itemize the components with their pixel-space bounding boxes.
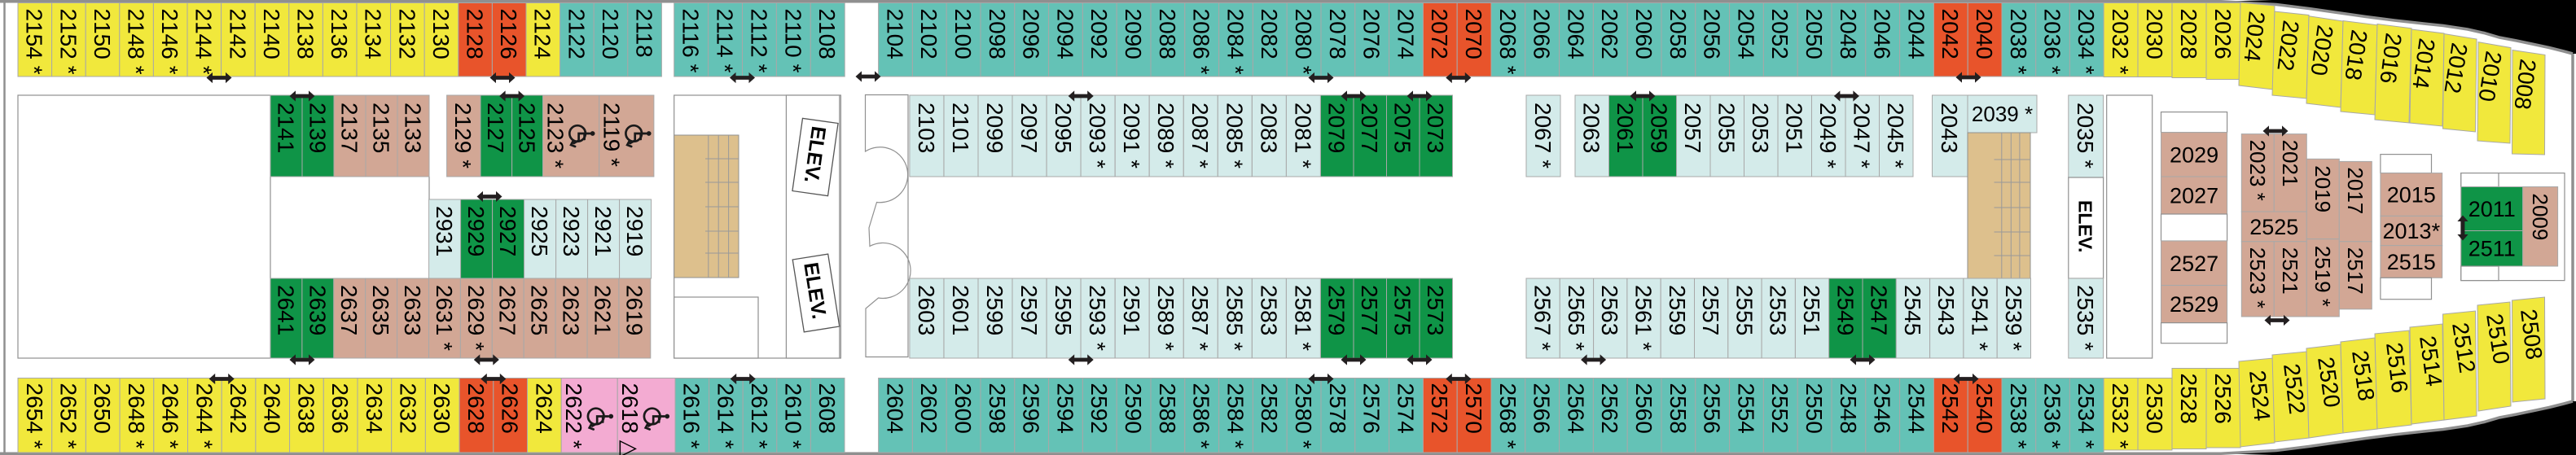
svg-text:2594: 2594 [1052, 383, 1077, 434]
svg-text:2602: 2602 [916, 383, 941, 434]
svg-text:2027: 2027 [2170, 183, 2218, 208]
svg-text:2581 *: 2581 * [1290, 285, 1315, 351]
svg-text:2049 *: 2049 * [1815, 103, 1841, 168]
svg-text:2120: 2120 [598, 9, 623, 59]
svg-text:2138: 2138 [293, 9, 318, 59]
svg-text:2047 *: 2047 * [1850, 103, 1875, 168]
svg-text:2146 *: 2146 * [157, 9, 182, 75]
svg-text:2102: 2102 [916, 9, 941, 59]
svg-text:2622 *: 2622 * [561, 383, 586, 449]
svg-text:2517: 2517 [2343, 247, 2368, 295]
svg-text:2554: 2554 [1733, 383, 1758, 434]
svg-text:2152 *: 2152 * [55, 9, 81, 75]
svg-text:2635: 2635 [368, 285, 393, 335]
svg-text:2567 *: 2567 * [1530, 285, 1556, 351]
svg-text:2026: 2026 [2210, 9, 2236, 59]
svg-text:2541 *: 2541 * [1968, 285, 1993, 351]
svg-text:2636: 2636 [327, 383, 353, 434]
svg-text:2125: 2125 [515, 103, 540, 153]
svg-text:2062: 2062 [1597, 9, 1622, 59]
svg-text:2154 *: 2154 * [22, 9, 47, 75]
svg-text:2559: 2559 [1665, 285, 1690, 335]
svg-text:2557: 2557 [1698, 285, 1723, 335]
svg-text:2596: 2596 [1019, 383, 1044, 434]
svg-text:2639: 2639 [305, 285, 330, 335]
svg-text:2625: 2625 [527, 285, 552, 335]
svg-text:2104: 2104 [882, 9, 907, 59]
svg-text:2521: 2521 [2278, 247, 2302, 295]
svg-text:2634: 2634 [362, 383, 387, 434]
svg-text:2084 *: 2084 * [1222, 9, 1248, 75]
svg-text:2061: 2061 [1613, 103, 1638, 153]
svg-text:2538 *: 2538 * [2006, 383, 2031, 449]
svg-text:2130: 2130 [428, 9, 454, 59]
svg-text:2610 *: 2610 * [781, 383, 806, 449]
svg-text:2046: 2046 [1870, 9, 1895, 59]
svg-text:2629 *: 2629 * [463, 285, 489, 351]
svg-text:2590: 2590 [1121, 383, 1146, 434]
svg-text:2096: 2096 [1019, 9, 1044, 59]
svg-text:2618 △: 2618 △ [617, 383, 643, 455]
svg-text:2555: 2555 [1731, 285, 1757, 335]
svg-text:2140: 2140 [259, 9, 284, 59]
svg-text:2082: 2082 [1257, 9, 1282, 59]
svg-text:2532 *: 2532 * [2108, 383, 2133, 449]
svg-text:2626: 2626 [498, 383, 523, 434]
svg-text:2019: 2019 [2311, 165, 2335, 212]
svg-text:2045 *: 2045 * [1883, 103, 1908, 168]
svg-text:2009: 2009 [2528, 194, 2552, 241]
svg-text:2134: 2134 [361, 9, 386, 59]
svg-text:2044: 2044 [1903, 9, 1929, 59]
svg-text:2604: 2604 [882, 383, 907, 434]
svg-text:2035 *: 2035 * [2073, 103, 2098, 168]
svg-text:2030: 2030 [2142, 9, 2167, 59]
svg-text:2603: 2603 [914, 285, 939, 335]
svg-text:2565 *: 2565 * [1564, 285, 1589, 351]
svg-text:2614 *: 2614 * [713, 383, 738, 449]
svg-text:2094: 2094 [1052, 9, 1077, 59]
svg-text:2619: 2619 [621, 285, 647, 335]
svg-text:2580 *: 2580 * [1291, 383, 1316, 449]
svg-text:2556: 2556 [1700, 383, 1725, 434]
svg-text:2646 *: 2646 * [158, 383, 183, 449]
svg-text:2051: 2051 [1782, 103, 1807, 153]
svg-text:2057: 2057 [1680, 103, 1705, 153]
svg-text:2648 *: 2648 * [124, 383, 149, 449]
svg-text:2118: 2118 [632, 9, 657, 58]
svg-text:2631 *: 2631 * [432, 285, 457, 351]
svg-text:2562: 2562 [1597, 383, 1622, 434]
svg-text:2539 *: 2539 * [2001, 285, 2026, 351]
svg-text:2652 *: 2652 * [56, 383, 81, 449]
svg-text:2129 *: 2129 * [450, 103, 476, 168]
svg-text:2128: 2128 [463, 9, 488, 59]
svg-text:2108: 2108 [814, 9, 840, 59]
svg-text:2547: 2547 [1867, 285, 1892, 335]
svg-text:2587 *: 2587 * [1187, 285, 1213, 351]
svg-text:2598: 2598 [985, 383, 1010, 434]
svg-text:2148 *: 2148 * [124, 9, 149, 75]
svg-text:2058: 2058 [1665, 9, 1691, 59]
svg-text:2528: 2528 [2176, 374, 2201, 424]
svg-text:2054: 2054 [1733, 9, 1758, 59]
svg-text:2561 *: 2561 * [1631, 285, 1657, 351]
svg-text:2632: 2632 [396, 383, 421, 434]
svg-text:2511: 2511 [2468, 237, 2516, 261]
svg-text:2122: 2122 [564, 9, 589, 59]
svg-text:2563: 2563 [1597, 285, 1622, 335]
svg-text:2543: 2543 [1933, 285, 1959, 335]
svg-text:2641: 2641 [273, 285, 298, 335]
svg-text:2585 *: 2585 * [1222, 285, 1247, 351]
svg-text:2548: 2548 [1836, 383, 1861, 434]
svg-text:2597: 2597 [1016, 285, 1042, 335]
svg-text:2575: 2575 [1390, 285, 1415, 335]
svg-text:2098: 2098 [985, 9, 1010, 59]
svg-text:2919: 2919 [622, 206, 647, 256]
svg-text:2552: 2552 [1767, 383, 1793, 434]
svg-text:2612 *: 2612 * [747, 383, 772, 449]
svg-text:2086 *: 2086 * [1189, 9, 1214, 75]
svg-text:2530: 2530 [2142, 383, 2167, 434]
svg-text:2137: 2137 [336, 103, 362, 153]
svg-text:2654 *: 2654 * [22, 383, 47, 449]
svg-text:2085 *: 2085 * [1222, 103, 1247, 168]
svg-text:2034 *: 2034 * [2074, 9, 2099, 75]
svg-text:2103: 2103 [914, 103, 939, 153]
svg-text:2088: 2088 [1155, 9, 1180, 59]
svg-text:2650: 2650 [90, 383, 115, 434]
svg-text:ELEV.: ELEV. [2075, 200, 2096, 252]
svg-text:2036 *: 2036 * [2040, 9, 2065, 75]
svg-text:2136: 2136 [327, 9, 352, 59]
svg-text:2116 *: 2116 * [678, 9, 704, 73]
svg-text:2627: 2627 [495, 285, 520, 335]
svg-text:2068 *: 2068 * [1495, 9, 1521, 75]
svg-text:2142: 2142 [225, 9, 250, 59]
svg-text:2923: 2923 [559, 206, 584, 256]
svg-text:2560: 2560 [1631, 383, 1657, 434]
svg-text:2577: 2577 [1357, 285, 1382, 335]
svg-text:2052: 2052 [1767, 9, 1793, 59]
svg-text:2927: 2927 [495, 206, 520, 256]
svg-text:2073: 2073 [1423, 103, 1448, 153]
svg-text:2595: 2595 [1051, 285, 1076, 335]
svg-text:2135: 2135 [368, 103, 393, 153]
svg-text:2017: 2017 [2343, 167, 2368, 214]
svg-text:2549: 2549 [1832, 285, 1858, 335]
svg-text:2600: 2600 [950, 383, 976, 434]
svg-text:2579: 2579 [1324, 285, 1349, 335]
svg-text:2067 *: 2067 * [1530, 103, 1556, 168]
svg-text:2091 *: 2091 * [1119, 103, 1144, 168]
svg-text:2608: 2608 [814, 383, 840, 434]
svg-text:2584 *: 2584 * [1222, 383, 1248, 449]
svg-text:2141: 2141 [273, 103, 298, 153]
svg-text:2638: 2638 [293, 383, 318, 434]
svg-text:2055: 2055 [1714, 103, 1740, 153]
svg-text:2526: 2526 [2210, 374, 2236, 424]
svg-text:2087 *: 2087 * [1187, 103, 1213, 168]
svg-text:2642: 2642 [226, 383, 251, 434]
svg-text:2535 *: 2535 * [2073, 285, 2098, 351]
svg-text:2534 *: 2534 * [2074, 383, 2099, 449]
svg-text:2028: 2028 [2176, 9, 2201, 59]
svg-text:2089 *: 2089 * [1153, 103, 1178, 168]
svg-text:2083: 2083 [1256, 103, 1281, 153]
svg-text:2637: 2637 [336, 285, 362, 335]
svg-text:2576: 2576 [1359, 383, 1385, 434]
svg-text:2644 *: 2644 * [191, 383, 217, 449]
svg-text:2139: 2139 [305, 103, 330, 153]
svg-text:2072: 2072 [1427, 9, 1452, 59]
svg-text:2066: 2066 [1529, 9, 1555, 59]
svg-text:2568 *: 2568 * [1495, 383, 1521, 449]
svg-text:2093 *: 2093 * [1085, 103, 1110, 168]
svg-text:2023 *: 2023 * [2245, 140, 2270, 201]
svg-text:2524: 2524 [2245, 369, 2275, 422]
svg-text:2621: 2621 [590, 285, 615, 335]
svg-text:2578: 2578 [1325, 383, 1350, 434]
svg-text:2540: 2540 [1972, 383, 1997, 434]
svg-text:2095: 2095 [1051, 103, 1076, 153]
svg-text:2929: 2929 [463, 206, 489, 256]
svg-text:2099: 2099 [982, 103, 1007, 153]
svg-text:2059: 2059 [1647, 103, 1672, 153]
svg-text:2628: 2628 [463, 383, 489, 434]
svg-text:2101: 2101 [948, 103, 973, 153]
svg-text:2092: 2092 [1086, 9, 1112, 59]
svg-text:2124: 2124 [530, 9, 555, 59]
svg-text:2048: 2048 [1836, 9, 1861, 59]
svg-text:2593 *: 2593 * [1085, 285, 1110, 351]
svg-text:2542: 2542 [1937, 383, 1963, 434]
svg-text:2588: 2588 [1155, 383, 1180, 434]
svg-text:2601: 2601 [948, 285, 973, 335]
svg-text:2527: 2527 [2170, 252, 2218, 276]
svg-text:2132: 2132 [394, 9, 419, 59]
svg-text:2029: 2029 [2170, 142, 2218, 167]
svg-text:2013*: 2013* [2383, 219, 2441, 243]
svg-text:2133: 2133 [400, 103, 425, 153]
svg-text:2529: 2529 [2170, 292, 2218, 317]
svg-text:2097: 2097 [1016, 103, 1042, 153]
svg-text:2070: 2070 [1461, 9, 1486, 59]
svg-text:2523 *: 2523 * [2245, 247, 2270, 308]
svg-text:2078: 2078 [1325, 9, 1350, 59]
svg-text:2640: 2640 [260, 383, 285, 434]
svg-text:2112 *: 2112 * [746, 9, 771, 73]
svg-text:2074: 2074 [1393, 9, 1418, 59]
svg-text:2079: 2079 [1324, 103, 1349, 153]
svg-text:2566: 2566 [1529, 383, 1555, 434]
svg-text:2032 *: 2032 * [2108, 9, 2133, 75]
svg-text:2077: 2077 [1357, 103, 1382, 153]
svg-text:2550: 2550 [1801, 383, 1827, 434]
svg-text:2624: 2624 [531, 383, 556, 434]
svg-text:2553: 2553 [1766, 285, 1791, 335]
svg-text:2586 *: 2586 * [1189, 383, 1214, 449]
svg-text:2573: 2573 [1423, 285, 1448, 335]
svg-text:2572: 2572 [1427, 383, 1452, 434]
svg-text:2042: 2042 [1937, 9, 1963, 59]
svg-text:2100: 2100 [950, 9, 976, 59]
svg-text:2126: 2126 [496, 9, 521, 59]
svg-text:2039 *: 2039 * [1972, 102, 2033, 126]
svg-text:2630: 2630 [429, 383, 454, 434]
svg-text:2921: 2921 [590, 206, 616, 256]
svg-text:2931: 2931 [432, 206, 457, 256]
svg-text:2050: 2050 [1801, 9, 1827, 59]
svg-text:2599: 2599 [982, 285, 1007, 335]
svg-text:2623: 2623 [559, 285, 584, 335]
svg-text:2064: 2064 [1563, 9, 1588, 59]
svg-text:2545: 2545 [1900, 285, 1925, 335]
svg-text:2925: 2925 [527, 206, 552, 256]
svg-text:2591: 2591 [1119, 285, 1144, 335]
svg-text:2075: 2075 [1390, 103, 1415, 153]
svg-text:2110 *: 2110 * [780, 9, 805, 73]
svg-text:2123 *: 2123 * [543, 103, 568, 168]
svg-text:2021: 2021 [2278, 140, 2302, 187]
svg-text:2040: 2040 [1972, 9, 1997, 59]
svg-text:2574: 2574 [1393, 383, 1418, 434]
svg-text:2081 *: 2081 * [1290, 103, 1315, 168]
svg-text:2536 *: 2536 * [2040, 383, 2065, 449]
svg-text:2076: 2076 [1359, 9, 1385, 59]
svg-text:2043: 2043 [1937, 103, 1962, 153]
svg-text:2114 *: 2114 * [713, 9, 738, 73]
svg-text:2038 *: 2038 * [2006, 9, 2031, 75]
svg-text:2053: 2053 [1748, 103, 1773, 153]
svg-text:2592: 2592 [1086, 383, 1112, 434]
svg-text:2525: 2525 [2249, 215, 2298, 239]
svg-text:2080 *: 2080 * [1291, 9, 1316, 75]
svg-text:2150: 2150 [90, 9, 115, 59]
svg-text:2056: 2056 [1700, 9, 1725, 59]
svg-text:2564: 2564 [1563, 383, 1588, 434]
svg-text:2060: 2060 [1631, 9, 1657, 59]
svg-text:2582: 2582 [1257, 383, 1282, 434]
svg-text:2015: 2015 [2387, 182, 2436, 207]
svg-text:2589 *: 2589 * [1153, 285, 1178, 351]
svg-text:2011: 2011 [2468, 197, 2516, 221]
svg-text:2090: 2090 [1121, 9, 1146, 59]
svg-text:2546: 2546 [1870, 383, 1895, 434]
svg-text:2551: 2551 [1799, 285, 1824, 335]
svg-text:2633: 2633 [400, 285, 425, 335]
svg-text:2558: 2558 [1665, 383, 1691, 434]
svg-text:2024: 2024 [2240, 10, 2270, 63]
svg-text:2515: 2515 [2387, 250, 2436, 274]
svg-text:2127: 2127 [483, 103, 508, 153]
svg-text:2519 *: 2519 * [2311, 246, 2335, 307]
svg-text:2063: 2063 [1579, 103, 1604, 153]
svg-text:2544: 2544 [1903, 383, 1929, 434]
svg-text:2119 *: 2119 * [599, 103, 625, 167]
svg-text:2616 *: 2616 * [679, 383, 704, 449]
svg-text:2144 *: 2144 * [191, 9, 217, 75]
svg-text:2570: 2570 [1461, 383, 1486, 434]
svg-text:2583: 2583 [1256, 285, 1281, 335]
